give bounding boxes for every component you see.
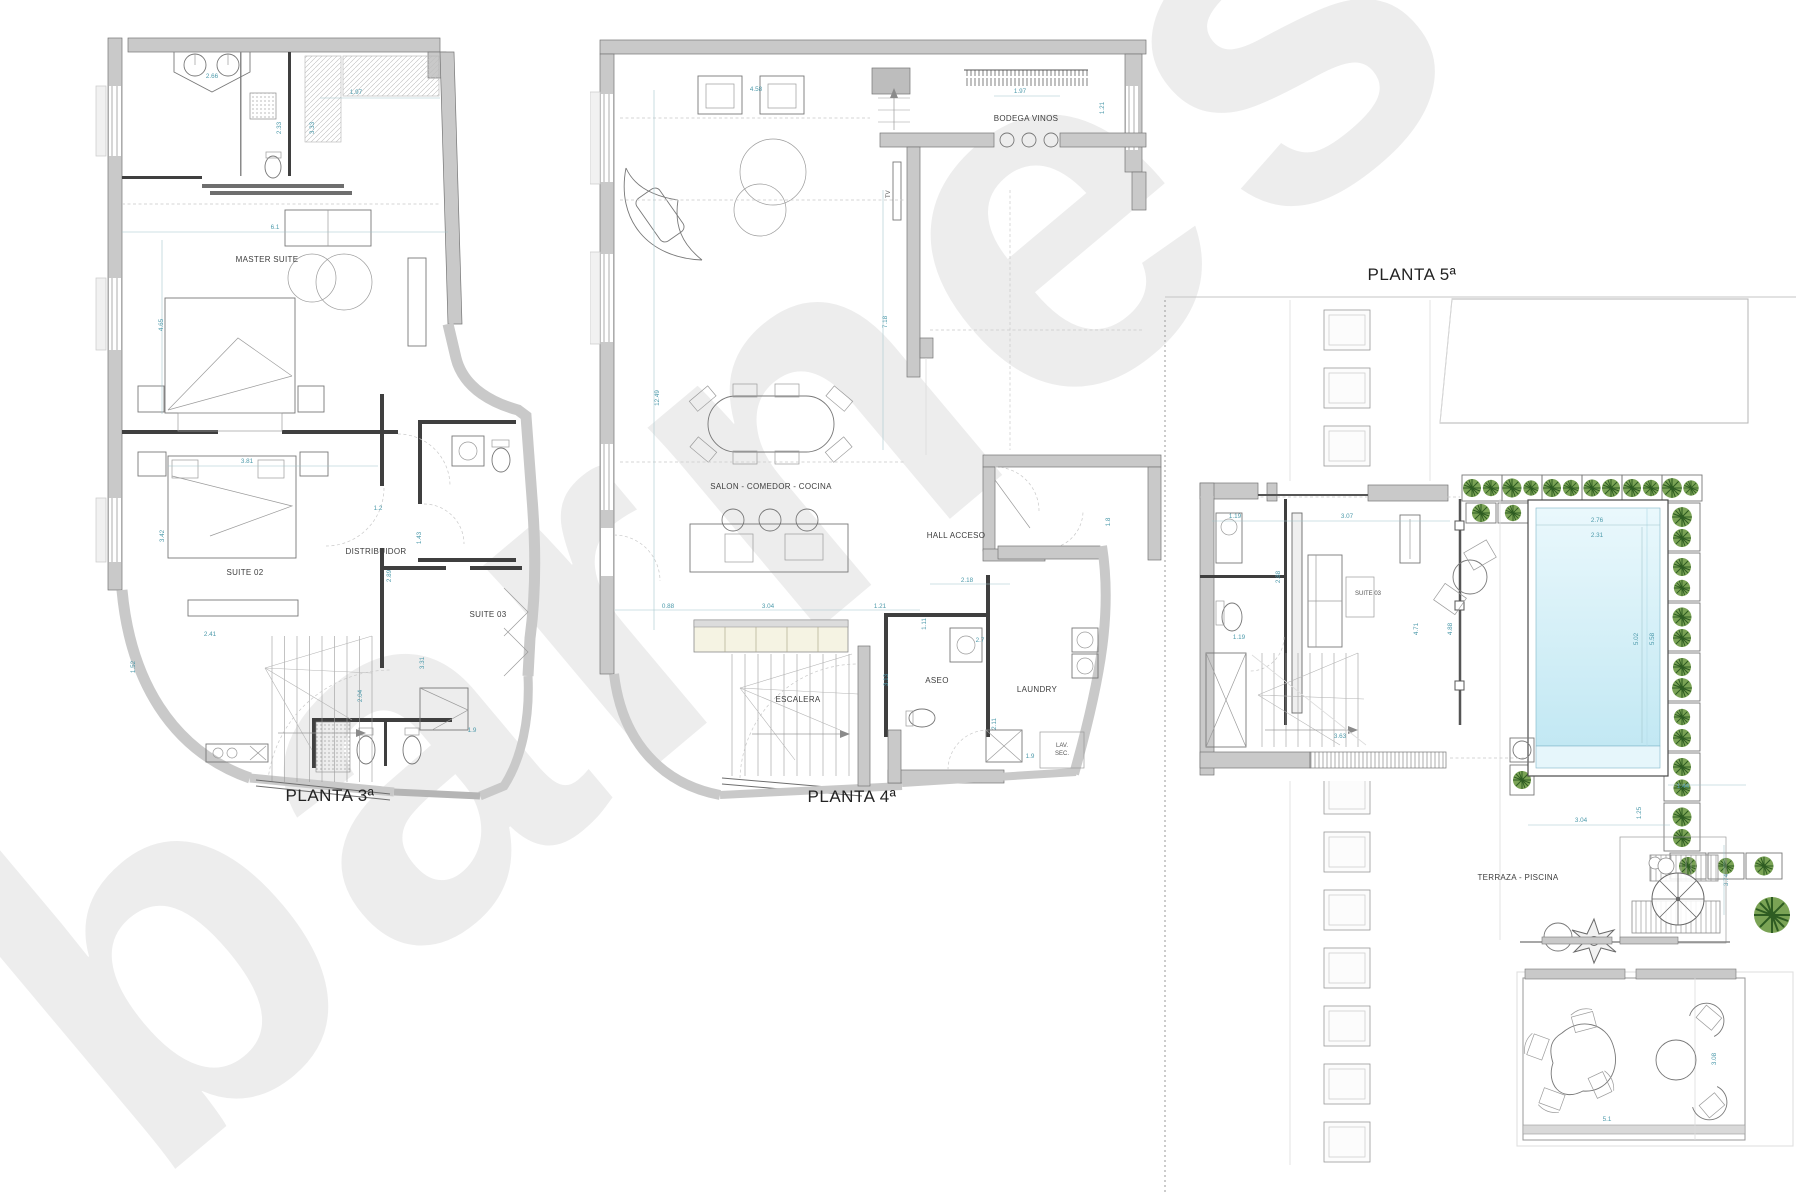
chair (1464, 540, 1497, 570)
plan-planta-3: MASTER SUITE SUITE 02 DISTRIBUIDOR SUITE… (60, 28, 580, 808)
nightstand (300, 452, 328, 476)
sink (725, 534, 753, 562)
dim: 3.07 (1341, 513, 1354, 520)
stool (1044, 133, 1058, 147)
dim: 1.19 (1229, 513, 1242, 520)
dim: 3.81 (241, 458, 254, 465)
wine-rack (964, 70, 1088, 86)
room-label: LAUNDRY (1017, 685, 1058, 694)
door-arc (326, 488, 384, 546)
p4-living: TV (620, 76, 906, 260)
nightstand (138, 452, 166, 476)
dim: 12.49 (654, 390, 661, 406)
plan-title-planta3: PLANTA 3ª (286, 786, 375, 805)
dim: 3.33 (309, 121, 316, 134)
dim: 1.21 (1099, 101, 1106, 114)
p4-salon: SALON - COMEDOR - COCINA (620, 384, 906, 652)
pool-water (1536, 508, 1660, 746)
p4-void (926, 190, 1142, 455)
dim: 3.13 (883, 673, 890, 686)
dim: 2.31 (1591, 532, 1604, 539)
plan-planta-5: PLANTA 5ª (1150, 225, 1796, 1198)
wardrobe (1292, 513, 1302, 713)
room-label: SUITE 02 (226, 568, 263, 577)
dim: 2.66 (206, 73, 219, 80)
dim: 2.89 (386, 569, 393, 582)
dim: 2.33 (276, 121, 283, 134)
bench (188, 600, 298, 616)
nightstand (138, 386, 164, 412)
basin (459, 442, 477, 460)
chaise (634, 186, 687, 245)
p3-suite02: SUITE 02 (138, 452, 384, 616)
p3-distribuidor: DISTRIBUIDOR (346, 434, 450, 556)
dim: 1.9 (468, 727, 477, 734)
plan-planta-4: BODEGA VINOS TV HALL A (590, 30, 1170, 830)
door-arc (948, 730, 988, 770)
stool (1022, 133, 1036, 147)
planter-column-right (1664, 503, 1700, 851)
rug-circle (316, 254, 372, 310)
room-label: BODEGA VINOS (994, 114, 1059, 123)
chair (733, 384, 757, 397)
dim: 2.7 (976, 637, 985, 644)
dim: 4.71 (1413, 622, 1420, 635)
dim: 1.97 (1014, 88, 1027, 95)
door-arc (1045, 511, 1083, 549)
dim: 6.1 (271, 224, 280, 231)
awning (1440, 299, 1748, 423)
room-label: MASTER SUITE (236, 255, 299, 264)
dim: 1.19 (1233, 634, 1246, 641)
dim: 1.11 (921, 618, 928, 630)
dim: 2.11 (991, 718, 998, 730)
plan-title-planta4: PLANTA 4ª (808, 787, 897, 806)
master-bed (165, 298, 295, 413)
toilet (265, 156, 281, 178)
tv-label: TV (886, 190, 892, 198)
room-label: SALON - COMEDOR - COCINA (710, 482, 832, 491)
p4-escalera: ESCALERA (614, 646, 902, 796)
room-label: TERRAZA - PISCINA (1477, 873, 1558, 882)
dim: 5.02 (1633, 632, 1640, 645)
p4-laundry: LAV. SEC. LAUNDRY (902, 546, 1106, 783)
washer (1072, 628, 1098, 652)
basin (957, 636, 975, 654)
door-arc (424, 504, 464, 544)
bidet (403, 736, 421, 764)
p4-windows (590, 92, 613, 576)
p3-bathroom-top (174, 52, 439, 178)
dim: 2.04 (357, 689, 364, 702)
dim: 3.04 (762, 603, 775, 610)
chair (825, 437, 852, 462)
dim: 1.2 (374, 505, 383, 512)
room-label: ASEO (925, 676, 948, 685)
dim: 1.52 (130, 660, 137, 673)
dim: 1.97 (350, 89, 363, 96)
stool (722, 509, 744, 531)
p3-bath3 (316, 722, 421, 772)
chair (826, 386, 853, 411)
dim: 3.08 (1711, 1052, 1718, 1065)
tv (893, 162, 901, 220)
louver-vent (1310, 752, 1446, 768)
p5-lower-terrace: 5.1 3.08 (1517, 969, 1795, 1146)
room-label: LAV. (1056, 743, 1068, 749)
room-label: ESCALERA (775, 695, 820, 704)
p3-master-suite: MASTER SUITE (122, 184, 440, 431)
suite02-bed (168, 456, 296, 558)
dim: 3.63 (1334, 733, 1347, 740)
sliding-door (202, 184, 344, 188)
plan-title-planta5: PLANTA 5ª (1368, 265, 1457, 284)
shower (316, 722, 350, 772)
dining-table (708, 396, 834, 452)
chair (689, 386, 716, 411)
stool (1000, 133, 1014, 147)
dim: 3.31 (419, 656, 426, 669)
room-label: SEC. (1055, 751, 1069, 757)
chair (690, 437, 717, 462)
dim: 1.44 (1677, 783, 1690, 790)
dim: 1.25 (1636, 806, 1643, 819)
dim: 3.42 (159, 529, 166, 542)
pillar (872, 68, 910, 94)
p4-hall: HALL ACCESO (927, 455, 1161, 561)
dim: 1.8 (1105, 517, 1112, 526)
toilet (492, 448, 510, 472)
stool (759, 509, 781, 531)
floorplan-sheet: barnes (0, 0, 1796, 1198)
dim: 1.21 (874, 603, 887, 610)
dim: 1.43 (416, 531, 423, 544)
dim: 7.18 (882, 315, 889, 328)
shower-grid (250, 93, 276, 119)
dim: 0.88 (662, 603, 675, 610)
door-arc (614, 535, 660, 581)
p3-bath2 (424, 436, 510, 544)
dim: 2.41 (204, 631, 217, 638)
room-label: SUITE 03 (469, 610, 506, 619)
nightstand (298, 386, 324, 412)
dim: 1.9 (1026, 753, 1035, 760)
bench (408, 258, 426, 346)
rug-circle (740, 139, 806, 205)
p3-suite03: SUITE 03 (420, 588, 528, 730)
p5-pool: 2.76 2.31 5.02 5.58 (1510, 500, 1668, 776)
sink (785, 534, 823, 560)
sofa (624, 168, 702, 260)
dim: 5.1 (1603, 1116, 1612, 1123)
dim: 4.65 (158, 318, 165, 331)
stool (796, 509, 818, 531)
sliding-door (210, 191, 352, 195)
p4-walls (590, 40, 1146, 674)
room-label: SUITE 03 (1355, 591, 1382, 597)
room-label: HALL ACCESO (927, 531, 986, 540)
p3-walls (96, 38, 535, 796)
room-label: DISTRIBUIDOR (346, 547, 407, 556)
chair (775, 384, 799, 397)
parasol (1652, 873, 1704, 925)
rug-circle (734, 184, 786, 236)
dim: 5.58 (1649, 632, 1656, 645)
dim: 2.76 (1591, 517, 1604, 524)
dim: 4.58 (750, 86, 763, 93)
door-arc (398, 434, 450, 486)
dim: 4.88 (1447, 622, 1454, 635)
dim: 2.88 (1275, 570, 1282, 583)
dim: 2.18 (961, 577, 974, 584)
p3-dimensions: 2.66 2.33 3.33 1.97 6.1 4.65 3.81 3.42 1… (122, 73, 477, 734)
pool-step (1536, 746, 1660, 768)
dim: 3.04 (1575, 817, 1588, 824)
